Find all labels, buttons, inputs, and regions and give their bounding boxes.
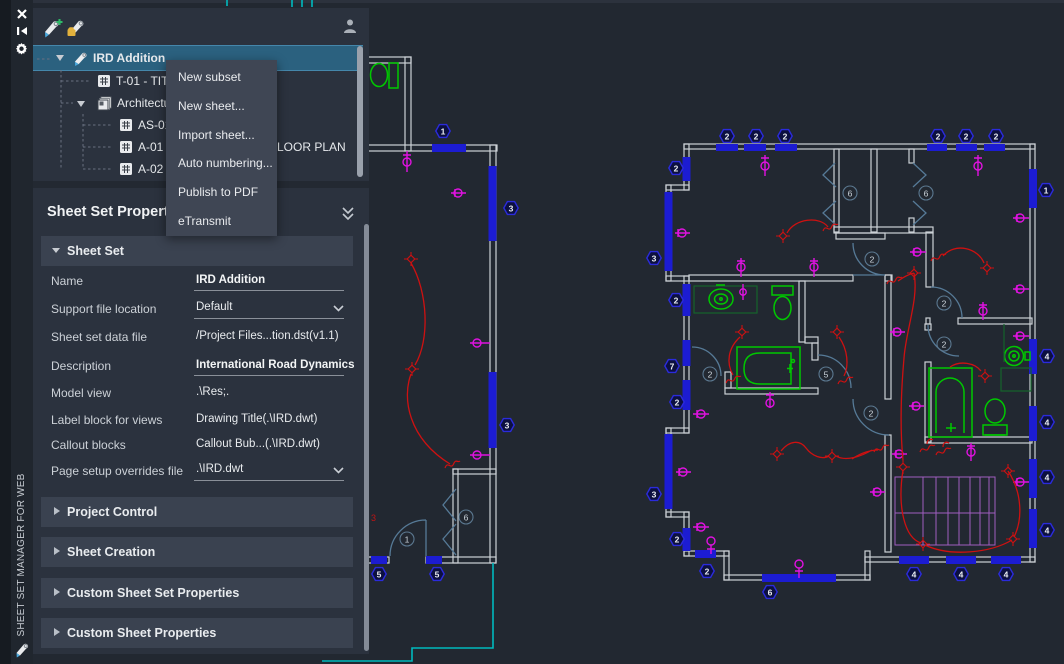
- svg-text:1: 1: [405, 535, 410, 545]
- svg-text:4: 4: [912, 570, 917, 580]
- svg-text:2: 2: [674, 164, 679, 174]
- svg-text:3: 3: [652, 254, 657, 264]
- svg-text:3: 3: [652, 490, 657, 500]
- svg-text:2: 2: [783, 132, 788, 142]
- svg-text:2: 2: [964, 132, 969, 142]
- svg-text:1: 1: [1044, 186, 1049, 196]
- svg-text:6: 6: [464, 513, 469, 523]
- svg-text:2: 2: [754, 132, 759, 142]
- svg-text:6: 6: [768, 588, 773, 598]
- svg-text:3: 3: [509, 204, 514, 214]
- svg-text:6: 6: [924, 189, 929, 199]
- svg-text:7: 7: [670, 362, 675, 372]
- svg-text:4: 4: [1004, 570, 1009, 580]
- svg-text:6: 6: [848, 189, 853, 199]
- svg-text:4: 4: [959, 570, 964, 580]
- svg-text:2: 2: [675, 535, 680, 545]
- svg-text:2: 2: [708, 370, 713, 380]
- svg-text:1: 1: [441, 127, 446, 137]
- svg-text:2: 2: [870, 255, 875, 265]
- svg-text:5: 5: [824, 370, 829, 380]
- svg-text:5: 5: [435, 570, 440, 580]
- svg-text:2: 2: [675, 398, 680, 408]
- svg-text:4: 4: [1045, 352, 1050, 362]
- svg-text:4: 4: [1045, 526, 1050, 536]
- svg-text:5: 5: [377, 570, 382, 580]
- svg-text:3: 3: [371, 513, 376, 523]
- svg-text:2: 2: [994, 132, 999, 142]
- svg-text:3: 3: [505, 421, 510, 431]
- svg-text:2: 2: [942, 340, 947, 350]
- svg-text:2: 2: [942, 299, 947, 309]
- svg-text:2: 2: [674, 296, 679, 306]
- svg-text:2: 2: [705, 567, 710, 577]
- svg-text:2: 2: [869, 409, 874, 419]
- svg-text:4: 4: [1045, 418, 1050, 428]
- svg-text:2: 2: [725, 132, 730, 142]
- svg-text:2: 2: [936, 132, 941, 142]
- svg-text:4: 4: [1045, 473, 1050, 483]
